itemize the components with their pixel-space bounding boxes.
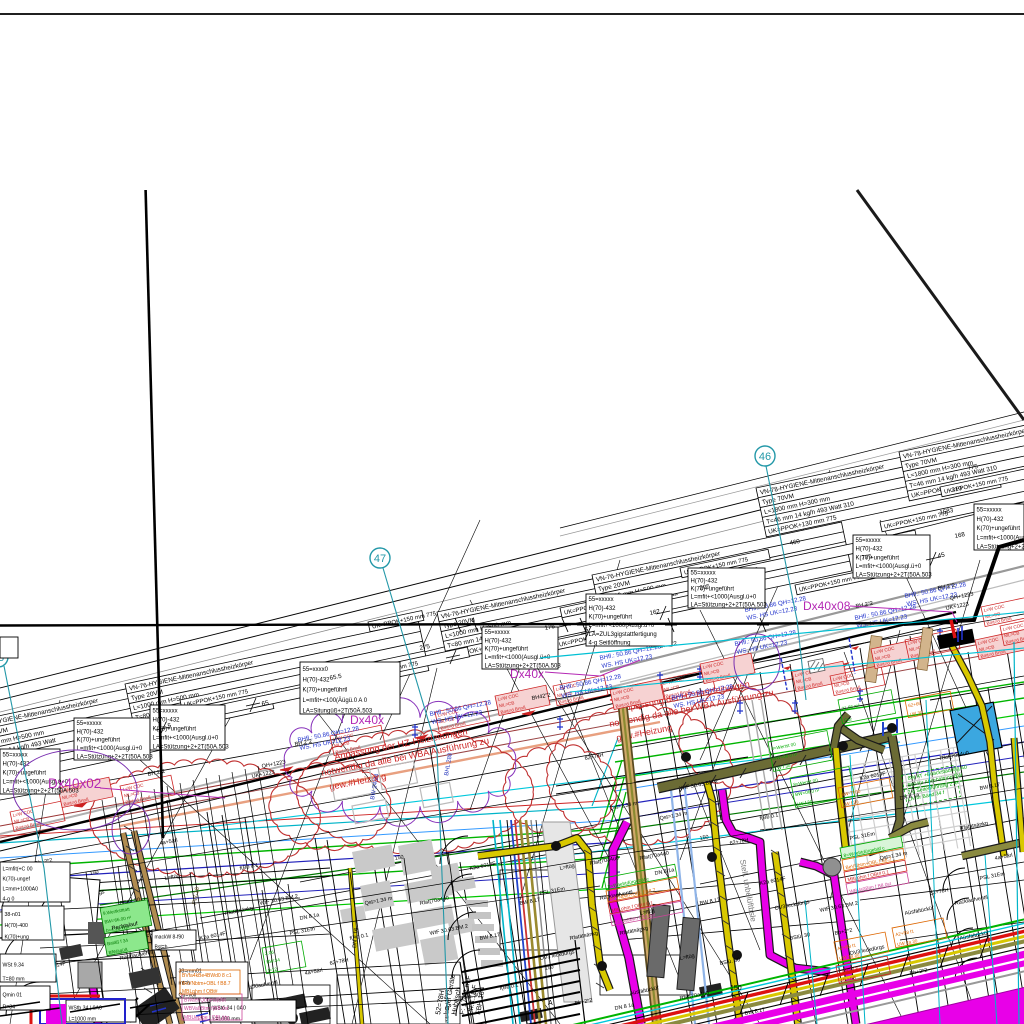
svg-text:L=mfit(+C 00: L=mfit(+C 00 xyxy=(3,867,33,873)
svg-text:WStb 34 | 0A0: WStb 34 | 0A0 xyxy=(69,1006,102,1012)
svg-text:MBUeptbe f OBLätq: MBUeptbe f OBLätq xyxy=(184,1015,229,1021)
svg-text:Dx40x: Dx40x xyxy=(510,667,544,681)
svg-text:A: A xyxy=(548,1000,553,1007)
svg-text:Dx40x02: Dx40x02 xyxy=(48,776,101,791)
svg-text:H(70)-432: H(70)-432 xyxy=(977,517,1005,523)
svg-text:L=mfit+<1000(Ausgl.ü+0: L=mfit+<1000(Ausgl.ü+0 xyxy=(77,746,143,752)
svg-text:K(70)+ungeführt: K(70)+ungeführt xyxy=(589,615,633,621)
svg-text:H(70)-432: H(70)-432 xyxy=(3,762,31,768)
svg-text:55=xxxxx: 55=xxxxx xyxy=(589,597,614,603)
svg-text:L=mfit+<1000(Ausgl.ü+0: L=mfit+<1000(Ausgl.ü+0 xyxy=(856,564,922,570)
svg-text:LA=ZUL3gigstattfertigung: LA=ZUL3gigstattfertigung xyxy=(589,632,657,638)
svg-text:55=xxxxx: 55=xxxxx xyxy=(77,721,102,727)
svg-text:BWaebQbeetd(Bbt: BWaebQbeetd(Bbt xyxy=(184,998,226,1004)
svg-text:MBLphm f OBt#: MBLphm f OBt# xyxy=(182,989,218,995)
svg-text:K(70)+ungeführt: K(70)+ungeführt xyxy=(77,738,121,744)
svg-text:Dx40x08: Dx40x08 xyxy=(803,599,851,613)
svg-text:LA=Stützung+2+2T(50A.503: LA=Stützung+2+2T(50A.503 xyxy=(856,573,933,579)
svg-text:H(70)-432: H(70)-432 xyxy=(303,677,331,683)
svg-text:55=xxxxx: 55=xxxxx xyxy=(856,538,881,544)
svg-text:H(70)-432: H(70)-432 xyxy=(77,729,105,735)
svg-text:55=xxxxx: 55=xxxxx xyxy=(977,508,1002,514)
svg-text:46: 46 xyxy=(759,451,771,463)
svg-text:WSt 9.34: WSt 9.34 xyxy=(3,963,24,969)
svg-text:55=xxxxx: 55=xxxxx xyxy=(485,630,510,636)
svg-text:T=80 mm: T=80 mm xyxy=(3,977,25,983)
svg-text:55=xxxxx: 55=xxxxx xyxy=(153,709,178,715)
svg-text:WBVaßBtm f(B8.0st: WBVaßBtm f(B8.0st xyxy=(184,1006,229,1012)
svg-text:K(70)-ungef: K(70)-ungef xyxy=(3,877,31,883)
svg-text:150: 150 xyxy=(730,985,742,992)
svg-text:L=mm+1000A0: L=mm+1000A0 xyxy=(3,887,39,893)
svg-text:LA=Stützung+2+2T(50A.503: LA=Stützung+2+2T(50A.503 xyxy=(691,603,768,609)
svg-text:L=mfit+<1000(Ausgl.ü+0: L=mfit+<1000(Ausgl.ü+0 xyxy=(691,595,757,601)
svg-text:K(70)+ungeführt: K(70)+ungeführt xyxy=(691,587,735,593)
svg-text:mackW 8-f90: mackW 8-f90 xyxy=(155,935,185,941)
svg-text:4-g 0: 4-g 0 xyxy=(3,897,15,903)
svg-text:L=mfit+<1000(Ausgl.ü+0: L=mfit+<1000(Ausgl.ü+0 xyxy=(153,736,219,742)
svg-text:K(70)+ung: K(70)+ung xyxy=(5,935,29,941)
svg-text:47: 47 xyxy=(374,553,386,565)
svg-text:55=xxxx0: 55=xxxx0 xyxy=(303,667,329,673)
svg-text:K(70)+ungeführtl: K(70)+ungeführtl xyxy=(303,688,348,694)
svg-text:Dx40x: Dx40x xyxy=(350,713,384,727)
svg-text:LA=Stützung+2+2T(50A.503: LA=Stützung+2+2T(50A.503 xyxy=(153,745,230,751)
svg-text:L=mfit+<100(Äügü.0 A 0: L=mfit+<100(Äügü.0 A 0 xyxy=(303,697,368,704)
svg-text:Qmin 01: Qmin 01 xyxy=(3,993,23,999)
svg-text:BVfa4kBe4BWd0 8 c1: BVfa4kBe4BWd0 8 c1 xyxy=(182,973,232,979)
svg-text:H(70)-432: H(70)-432 xyxy=(856,547,884,553)
svg-text:H(70)-432: H(70)-432 xyxy=(485,638,513,644)
svg-text:38-n01: 38-n01 xyxy=(5,912,21,918)
svg-text:K(70)+ungeführt: K(70)+ungeführt xyxy=(485,647,529,653)
svg-text:K(70)+ungeführt: K(70)+ungeführt xyxy=(977,526,1021,532)
svg-text:55=xxxxx: 55=xxxxx xyxy=(691,571,716,577)
svg-text:55=xxxxx: 55=xxxxx xyxy=(3,753,28,759)
svg-text:L=1000 mm: L=1000 mm xyxy=(69,1017,97,1023)
svg-text:H(70)-400: H(70)-400 xyxy=(5,923,28,929)
svg-text:BeVNbtm+OBL f B8.7: BeVNbtm+OBL f B8.7 xyxy=(182,981,231,987)
svg-text:H(70)-432: H(70)-432 xyxy=(589,606,617,612)
svg-text:4-g Seitlöffnung: 4-g Seitlöffnung xyxy=(589,641,631,647)
